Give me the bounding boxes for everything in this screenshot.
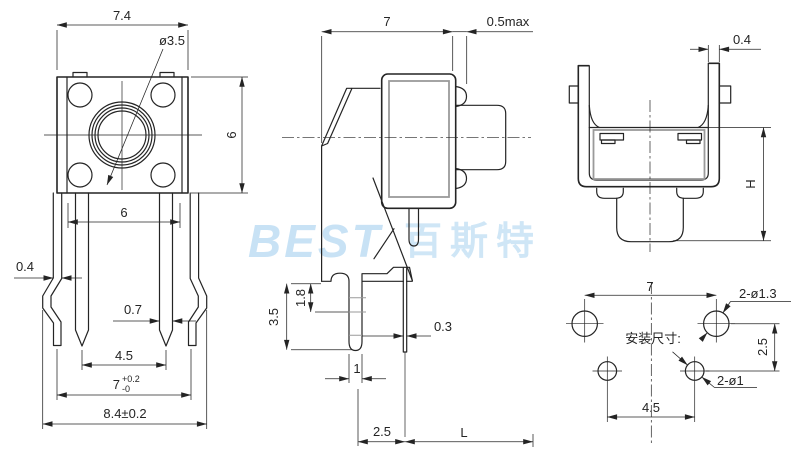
front-overall-width-label: 8.4±0.2 — [103, 406, 146, 421]
front-body-width-label: 7.4 — [113, 8, 131, 23]
watermark: BEST 百斯特 — [248, 215, 542, 267]
side-pin-thickness-label: 0.3 — [434, 319, 452, 334]
mounting-caption: 安装尺寸: — [625, 331, 681, 346]
mounting-lower-holes-label: 2-ø1 — [717, 373, 744, 388]
mounting-dimensions: 7 2-ø1.3 2.5 安装尺寸: 2-ø1 4.5 — [585, 279, 791, 417]
side-depth-label: 7 — [383, 14, 390, 29]
watermark-cjk: 百斯特 — [404, 221, 542, 263]
end-view: 0.4 H — [569, 32, 771, 252]
front-leg-thickness-label: 0.4 — [16, 259, 34, 274]
end-view-dimensions: 0.4 H — [673, 32, 771, 241]
front-view-dimensions: 7.4 ø3.5 6 6 0.4 0.7 4.5 7 +0.2 -0 8.4±0… — [14, 8, 248, 429]
front-view: 7.4 ø3.5 6 6 0.4 0.7 4.5 7 +0.2 -0 8.4±0… — [14, 8, 248, 429]
mounting-holes — [566, 282, 735, 444]
side-clearance-label: 0.5max — [487, 14, 530, 29]
mounting-upper-holes-label: 2-ø1.3 — [739, 286, 777, 301]
mounting-hole-pitch-label: 7 — [646, 279, 653, 294]
end-bracket-thickness-label: 0.4 — [733, 32, 751, 47]
technical-drawing: BEST 百斯特 — [0, 0, 792, 454]
side-pin-length-label: L — [460, 425, 467, 440]
front-pin-width-label: 0.7 — [124, 302, 142, 317]
front-pin-pitch-label: 4.5 — [115, 348, 133, 363]
mounting-lower-pitch-label: 4.5 — [642, 400, 660, 415]
mounting-row-pitch-label: 2.5 — [755, 338, 770, 356]
side-view-body — [282, 74, 531, 208]
side-peg-to-pin-label: 2.5 — [373, 424, 391, 439]
front-actuator-dia-label: ø3.5 — [159, 33, 185, 48]
front-body-height-label: 6 — [224, 131, 239, 138]
front-bracket-pitch-plus: +0.2 — [122, 374, 140, 384]
side-foot-height-label: 3.5 — [266, 308, 281, 326]
side-peg-width-label: 1 — [353, 361, 360, 376]
end-mount-height-label: H — [743, 179, 758, 188]
end-view-body — [569, 63, 730, 252]
side-slot-height-label: 1.8 — [293, 289, 308, 307]
drawing-canvas: BEST 百斯特 — [0, 0, 792, 454]
mounting-layout: 7 2-ø1.3 2.5 安装尺寸: 2-ø1 4.5 — [566, 279, 791, 444]
front-view-body — [44, 73, 202, 194]
watermark-latin: BEST — [248, 215, 384, 267]
front-bracket-pitch-label: 7 — [113, 377, 120, 392]
front-bracket-pitch-minus: -0 — [122, 384, 130, 394]
front-pin-row-label: 6 — [120, 205, 127, 220]
